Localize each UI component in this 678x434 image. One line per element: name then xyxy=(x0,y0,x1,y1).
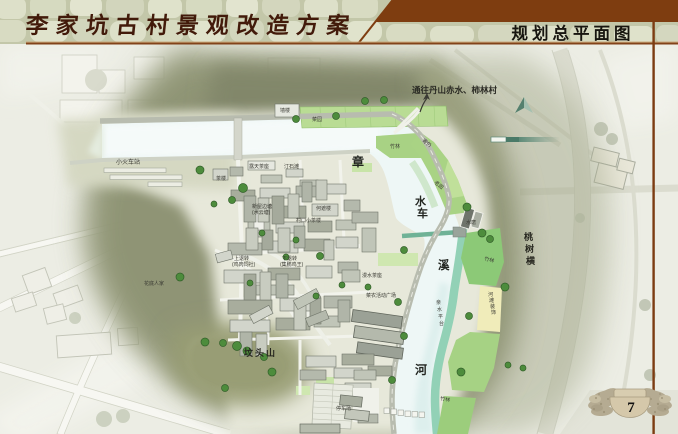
svg-text:菜园: 菜园 xyxy=(312,116,322,123)
svg-text:漫水茶座: 漫水茶座 xyxy=(362,272,382,279)
svg-text:下退转: 下退转 xyxy=(282,255,297,262)
svg-text:水: 水 xyxy=(437,306,442,313)
svg-text:平: 平 xyxy=(438,314,443,320)
svg-text:溪: 溪 xyxy=(438,258,450,272)
svg-text:滩: 滩 xyxy=(489,297,494,304)
svg-text:规划总平面图: 规划总平面图 xyxy=(512,23,635,43)
svg-text:水磨: 水磨 xyxy=(466,219,476,226)
svg-text:坟头山: 坟头山 xyxy=(244,347,277,358)
svg-text:河: 河 xyxy=(414,362,427,377)
svg-text:横: 横 xyxy=(526,255,536,266)
svg-text:章: 章 xyxy=(352,154,364,169)
svg-text:(鸡肉饲社): (鸡肉饲社) xyxy=(232,261,256,268)
svg-text:装: 装 xyxy=(490,303,495,310)
svg-text:水: 水 xyxy=(415,194,427,208)
svg-text:停车场: 停车场 xyxy=(336,405,351,412)
svg-text:村口小茶楼: 村口小茶楼 xyxy=(296,217,321,224)
svg-text:李家坑古村景观改造方案: 李家坑古村景观改造方案 xyxy=(25,12,359,38)
svg-text:(集鹏鸡王): (集鹏鸡王) xyxy=(280,261,304,268)
svg-text:茶楼: 茶楼 xyxy=(216,175,226,182)
svg-text:饰: 饰 xyxy=(491,309,496,316)
svg-text:上退转: 上退转 xyxy=(234,255,249,262)
svg-text:7: 7 xyxy=(627,400,635,416)
svg-text:通往丹山赤水、柿林村: 通往丹山赤水、柿林村 xyxy=(412,85,498,95)
svg-text:花底人家: 花底人家 xyxy=(144,280,164,287)
svg-text:树: 树 xyxy=(525,243,534,254)
svg-text:(水云塘): (水云塘) xyxy=(252,209,271,216)
svg-text:菜农活动广场: 菜农活动广场 xyxy=(366,292,396,299)
svg-text:新屋边塘: 新屋边塘 xyxy=(252,203,272,210)
svg-text:何遮楼: 何遮楼 xyxy=(316,205,331,212)
svg-text:墙楼: 墙楼 xyxy=(280,107,290,114)
svg-text:河: 河 xyxy=(488,291,493,298)
svg-text:桃: 桃 xyxy=(524,231,533,242)
svg-text:台: 台 xyxy=(439,320,444,327)
svg-text:露天茶座: 露天茶座 xyxy=(249,163,269,170)
svg-text:亲: 亲 xyxy=(436,299,441,306)
svg-text:车: 车 xyxy=(417,206,428,220)
svg-text:小火车站: 小火车站 xyxy=(116,158,140,166)
svg-text:竹林: 竹林 xyxy=(390,143,400,150)
svg-text:汀石滩: 汀石滩 xyxy=(284,163,299,170)
